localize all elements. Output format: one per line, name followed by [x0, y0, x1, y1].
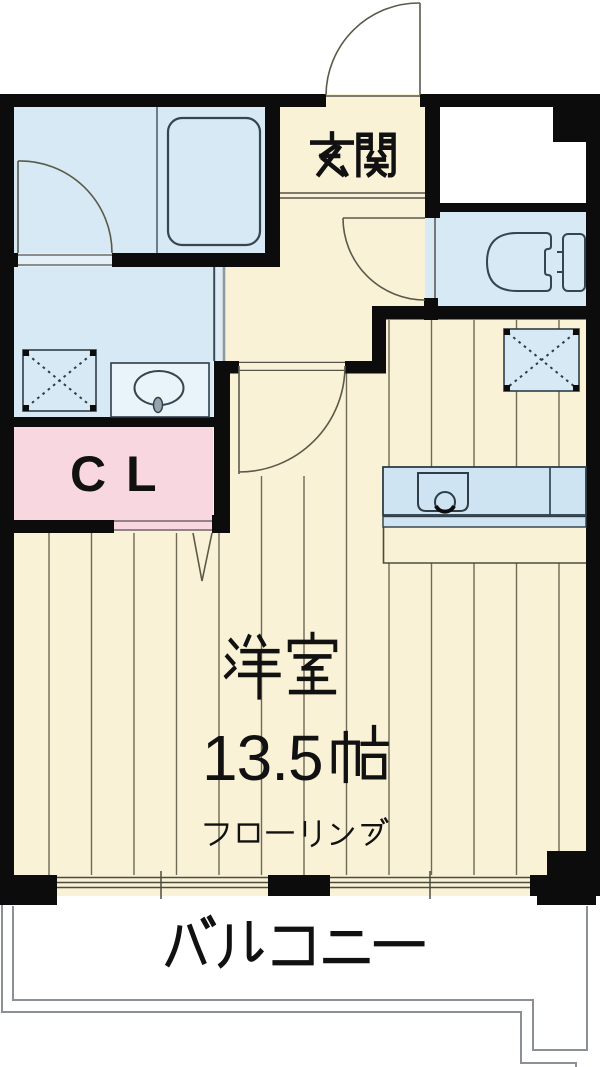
svg-text:13.5: 13.5	[202, 722, 323, 794]
svg-text:C L: C L	[70, 446, 160, 502]
